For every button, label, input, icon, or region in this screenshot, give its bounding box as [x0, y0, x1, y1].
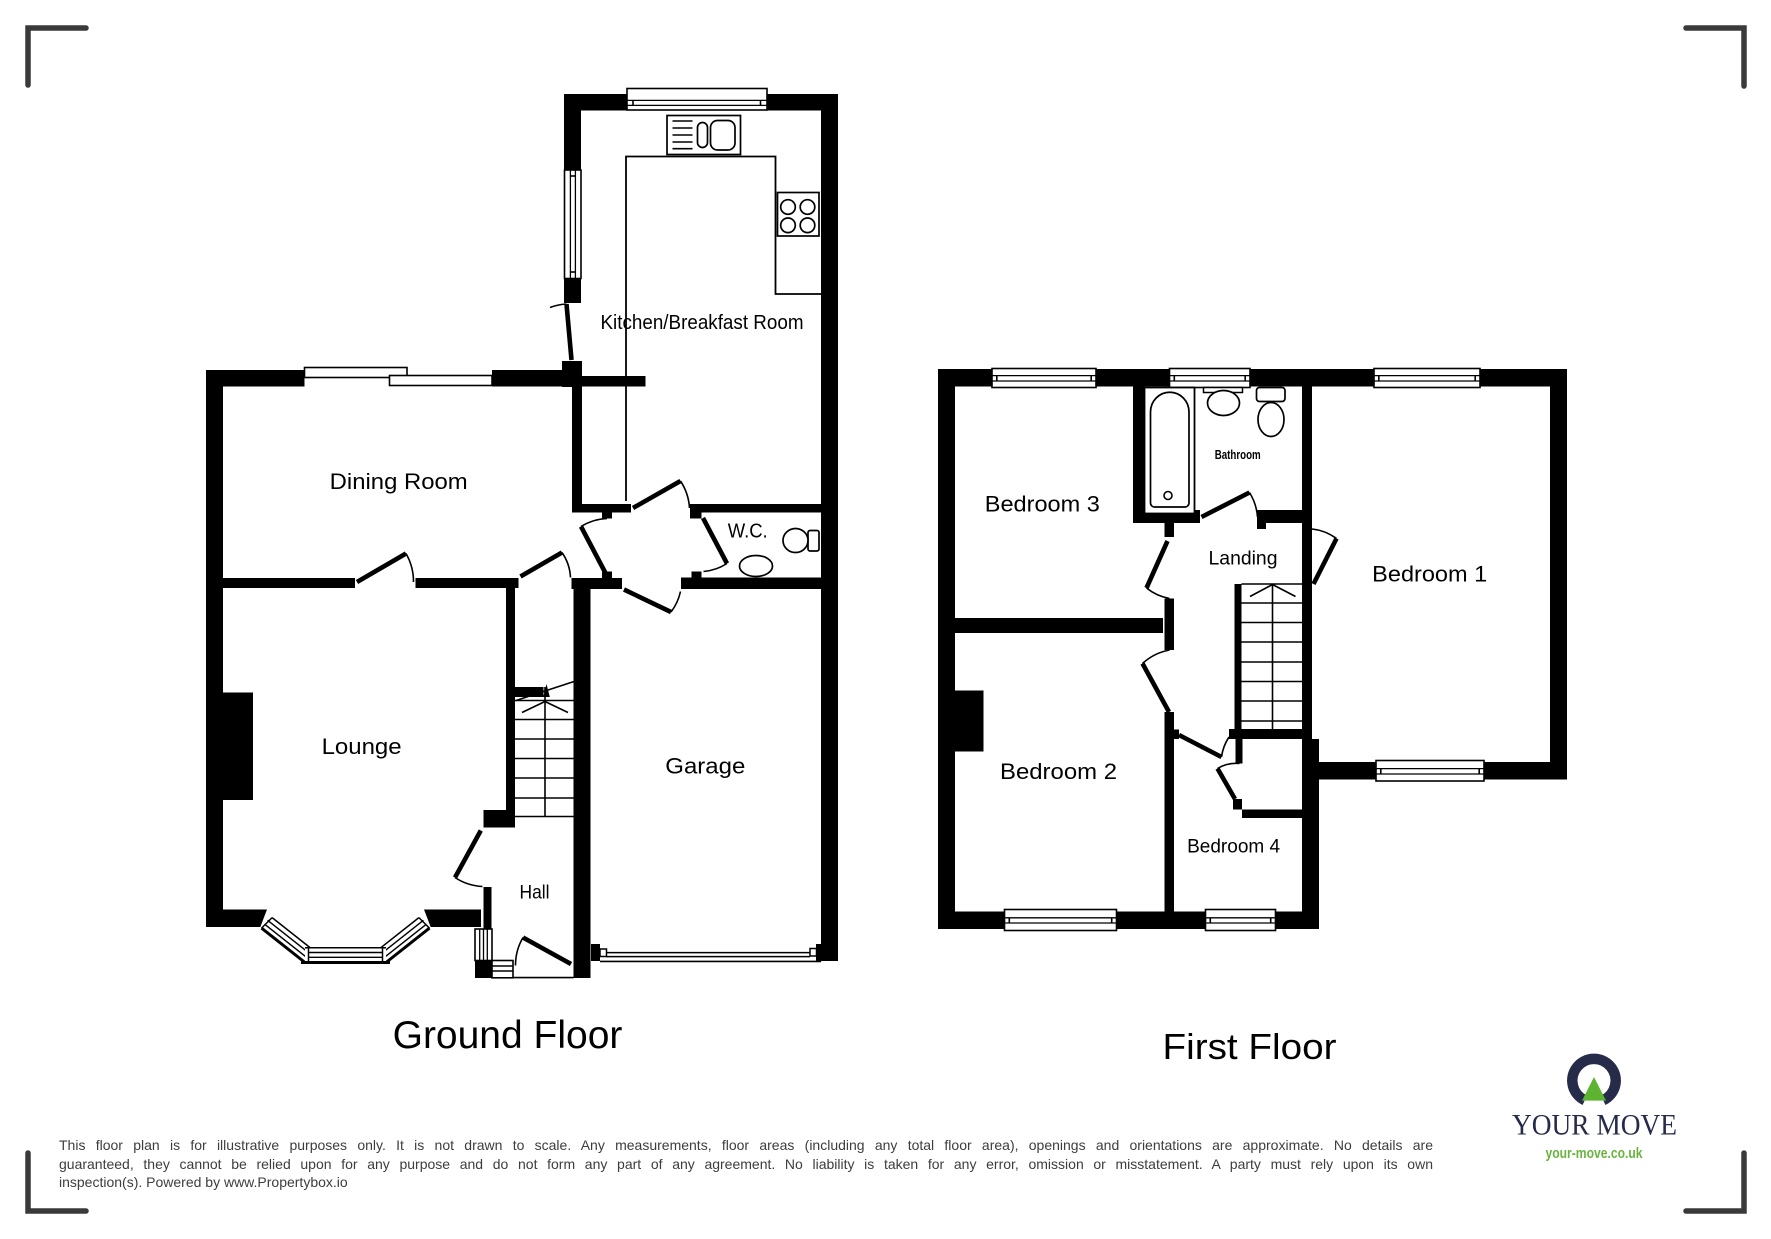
svg-text:Landing: Landing [1209, 549, 1278, 570]
svg-text:Bedroom 4: Bedroom 4 [1187, 836, 1280, 858]
svg-text:YOUR MOVE: YOUR MOVE [1512, 1109, 1677, 1142]
svg-text:First Floor: First Floor [1163, 1026, 1337, 1067]
svg-text:Bedroom 2: Bedroom 2 [1000, 759, 1117, 784]
svg-text:Bedroom 1: Bedroom 1 [1372, 562, 1487, 587]
svg-text:Garage: Garage [665, 754, 745, 779]
svg-text:Hall: Hall [520, 882, 550, 904]
svg-text:your-move.co.uk: your-move.co.uk [1546, 1146, 1644, 1162]
svg-text:Kitchen/Breakfast Room: Kitchen/Breakfast Room [601, 311, 804, 334]
svg-text:Dining Room: Dining Room [330, 469, 468, 494]
svg-text:Bedroom 3: Bedroom 3 [985, 492, 1100, 517]
svg-text:Ground Floor: Ground Floor [393, 1014, 623, 1057]
svg-text:Bathroom: Bathroom [1215, 448, 1261, 462]
svg-text:W.C.: W.C. [728, 520, 768, 543]
svg-text:Lounge: Lounge [322, 734, 402, 759]
